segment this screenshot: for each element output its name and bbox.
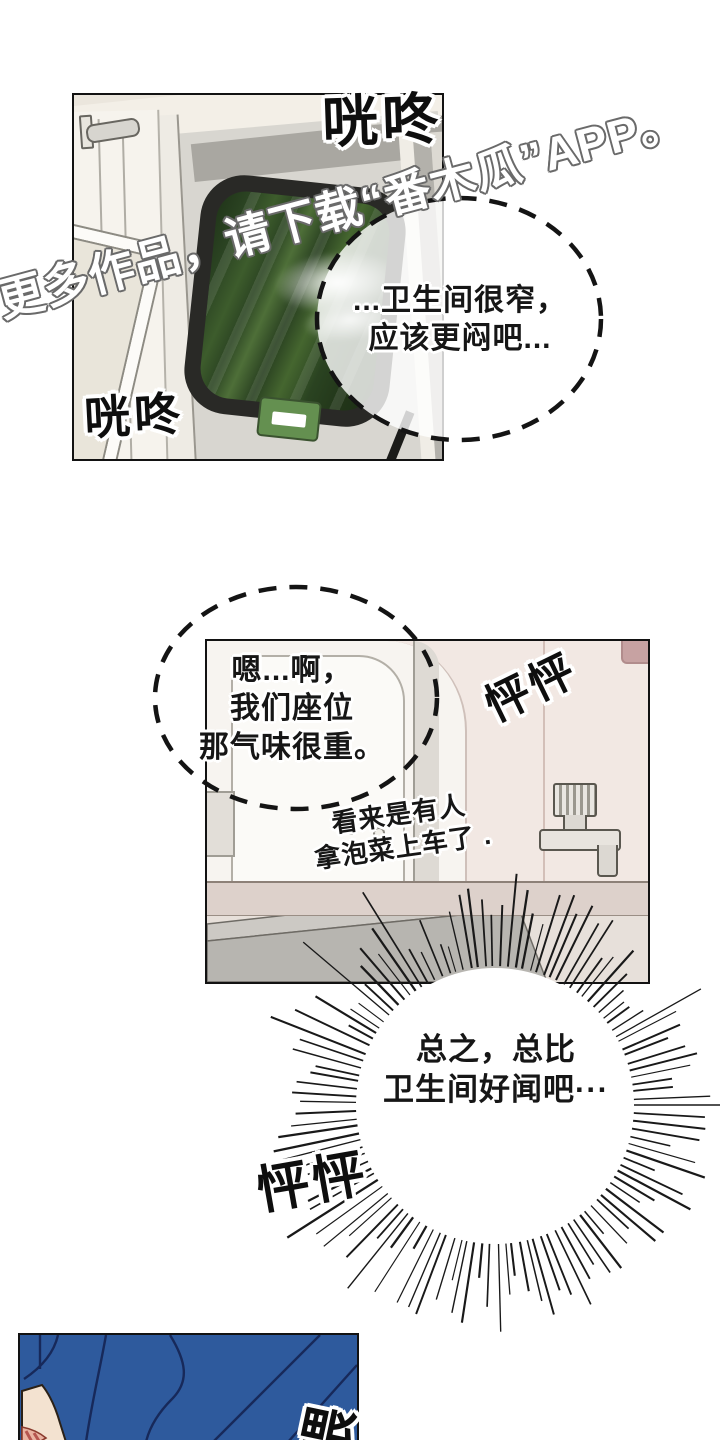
sign-label-slot	[271, 411, 306, 427]
dialogue-line: 我们座位	[230, 692, 354, 725]
dialogue-line: ...卫生间很窄，	[353, 284, 567, 317]
dialogue-toilet: ...卫生间很窄， 应该更闷吧...	[328, 282, 592, 359]
faucet-knob	[553, 783, 597, 817]
dialogue-line: 应该更闷吧...	[368, 322, 551, 355]
dialogue-line: 总之，总比	[416, 1032, 576, 1067]
dialogue-seat: 嗯...啊， 我们座位 那气味很重。	[166, 652, 418, 767]
dialogue-burst: 总之，总比 卫生间好闻吧···	[372, 1030, 620, 1109]
comic-page: 更多作品，请下载“番木瓜”APP。 咣咚 咣咚 ...卫生间很窄， 应该更闷吧.…	[0, 0, 720, 1440]
burst-bubble	[245, 855, 720, 1365]
sfx-clang-bottom: 咣咚	[82, 377, 185, 448]
sfx-clang-top: 咣咚	[321, 74, 444, 159]
dialogue-line: 卫生间好闻吧···	[383, 1072, 609, 1107]
dialogue-line: 那气味很重。	[199, 731, 385, 764]
dialogue-line: 嗯...啊，	[231, 654, 352, 687]
